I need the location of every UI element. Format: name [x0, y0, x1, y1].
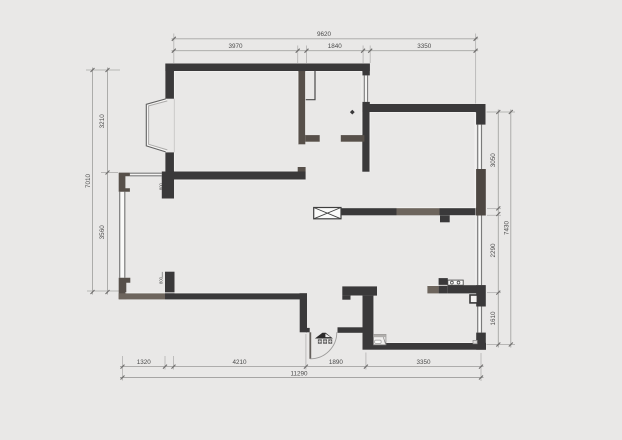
svg-text:3970: 3970 [228, 43, 243, 50]
svg-text:9620: 9620 [317, 31, 332, 38]
svg-text:3210: 3210 [99, 114, 106, 129]
svg-text:7010: 7010 [85, 174, 92, 189]
svg-text:1610: 1610 [490, 311, 497, 326]
svg-text:1890: 1890 [329, 359, 344, 366]
svg-text:800: 800 [159, 276, 164, 284]
svg-text:7430: 7430 [503, 221, 510, 236]
svg-text:4210: 4210 [232, 359, 247, 366]
svg-text:1320: 1320 [137, 359, 152, 366]
svg-text:3350: 3350 [417, 43, 432, 50]
svg-text:3350: 3350 [416, 359, 431, 366]
svg-text:11290: 11290 [290, 371, 308, 378]
svg-text:1840: 1840 [328, 43, 343, 50]
svg-text:3560: 3560 [99, 225, 106, 240]
svg-text:2290: 2290 [490, 243, 497, 258]
svg-text:3050: 3050 [490, 153, 497, 168]
